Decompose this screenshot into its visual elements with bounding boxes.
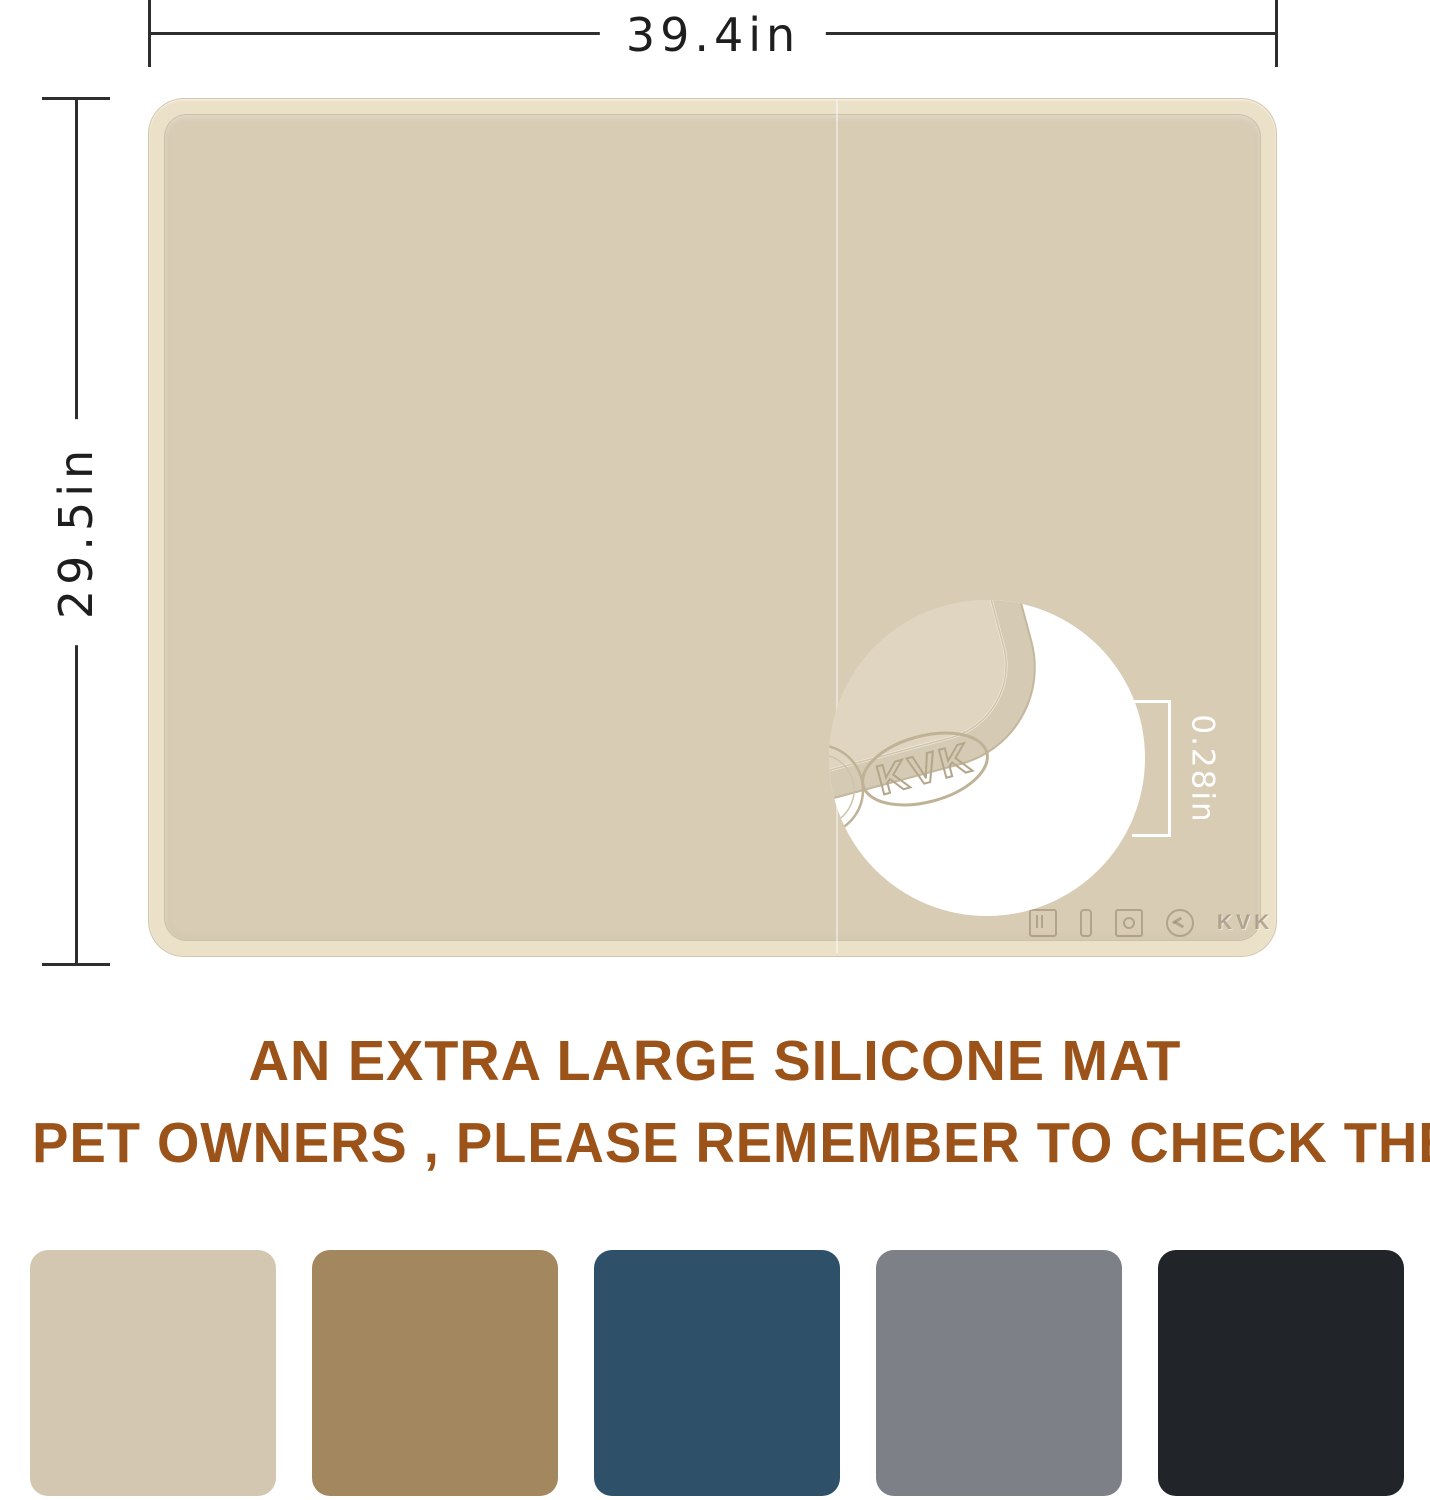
thickness-bracket-tick-top — [1132, 700, 1171, 703]
thickness-bracket-tick-bottom — [1132, 834, 1171, 837]
height-dimension-tick-top — [42, 97, 110, 100]
temperature-icon — [1080, 909, 1092, 937]
width-dimension-tick-left — [148, 0, 151, 67]
headline-line2: PET OWNERS , PLEASE REMEMBER TO CHECK TH… — [32, 1115, 1398, 1172]
width-dimension: 39.4in — [148, 0, 1278, 70]
food-grade-icon — [1029, 909, 1057, 937]
corner-closeup-graphic: KVK — [829, 600, 1145, 916]
corner-closeup-circle: KVK — [829, 600, 1145, 916]
color-swatch-slate-gray — [876, 1250, 1122, 1496]
recyclable-icon — [1166, 909, 1194, 937]
color-swatch-camel-brown — [312, 1250, 558, 1496]
headline-line1: AN EXTRA LARGE SILICONE MAT — [14, 1033, 1415, 1090]
color-swatch-steel-blue — [594, 1250, 840, 1496]
width-dimension-label: 39.4in — [600, 8, 826, 62]
brand-embossed-text: KVK — [1217, 911, 1273, 935]
height-dimension: 29.5in — [42, 97, 110, 966]
thickness-label-text: 0.28in — [1185, 714, 1221, 823]
product-size-diagram: 39.4in 29.5in KVK — [0, 0, 1430, 1500]
width-dimension-tick-right — [1275, 0, 1278, 67]
height-dimension-label: 29.5in — [43, 418, 109, 644]
thickness-dimension-label: 0.28in — [1178, 700, 1228, 837]
color-swatch-beige — [30, 1250, 276, 1496]
color-swatch-black — [1158, 1250, 1404, 1496]
dishwasher-safe-icon — [1115, 909, 1143, 937]
mat-fold-seam — [836, 100, 838, 953]
mat-embossed-icons: KVK — [1029, 909, 1273, 937]
height-dimension-tick-bottom — [42, 963, 110, 966]
thickness-bracket-line — [1168, 700, 1171, 837]
